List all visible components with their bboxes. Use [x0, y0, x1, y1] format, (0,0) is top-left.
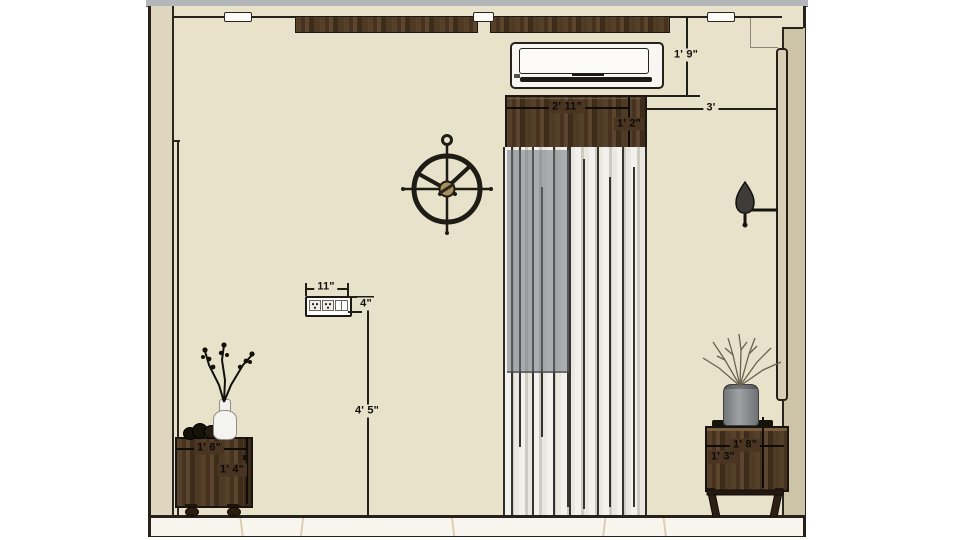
dim-label-right-table-height: 1' 3"	[708, 451, 738, 464]
dim-outlet-width-tick-r	[347, 283, 349, 296]
ac-front-panel	[519, 48, 649, 74]
elevation-drawing: 1' 9" 3' 2' 11" 1' 2"	[0, 0, 960, 540]
left-table-foot-1	[183, 504, 199, 517]
window-behind-curtain	[507, 150, 569, 371]
dim-pelmet-ext-line	[643, 95, 700, 97]
ac-indicator	[514, 74, 520, 78]
left-table-foot-2	[225, 504, 241, 517]
corner-step-hline	[750, 47, 778, 48]
dim-right-table-vline	[762, 417, 764, 488]
dim-outlet-tick-bottom	[348, 311, 362, 313]
dim-label-outlet-width: 11"	[314, 281, 337, 294]
clock-tick-left	[401, 187, 405, 191]
dim-label-ac-above: 1' 9"	[671, 49, 701, 62]
right-vase-twigs	[695, 330, 787, 390]
left-vase-body	[213, 410, 237, 440]
marble-floor	[151, 518, 803, 536]
corner-step-vline	[750, 18, 751, 48]
ac-vent-louver	[520, 77, 652, 82]
dim-label-pelmet-width: 2' 11"	[549, 101, 585, 114]
window-sill-line	[507, 371, 569, 373]
dim-label-outlet-floor: 4' 5"	[352, 405, 382, 418]
right-table-top-edge	[707, 428, 787, 431]
sconce-shade-icon	[736, 182, 754, 213]
wall-sconce	[725, 178, 783, 236]
dim-label-outlet-height: 4"	[357, 298, 375, 311]
ac-unit	[510, 42, 664, 89]
left-return-wall	[151, 6, 174, 515]
ceiling-wood-trim-right	[490, 16, 670, 33]
dim-label-3ft: 3'	[703, 102, 718, 115]
dim-label-left-table-height: 1' 4"	[217, 464, 247, 477]
left-vase-branches	[195, 335, 265, 405]
curtain	[503, 147, 647, 517]
ceiling-wood-trim-left	[295, 16, 478, 33]
right-table-legs	[705, 488, 785, 517]
ac-display-bar	[572, 73, 604, 76]
ceiling-light-3	[707, 12, 735, 22]
clock-tick-right	[489, 187, 493, 191]
right-wall-cap-line	[782, 27, 803, 29]
right-vase	[723, 384, 759, 426]
wall-clock	[390, 120, 510, 250]
dim-label-pelmet-height: 1' 2"	[614, 118, 644, 131]
dim-label-left-table-width: 1' 6"	[194, 442, 224, 455]
ceiling-light-2	[473, 12, 494, 22]
clock-tick-bottom	[445, 231, 449, 235]
switch-divider	[341, 301, 342, 310]
switch-module	[335, 300, 348, 311]
pelmet-top-highlight	[507, 98, 641, 99]
socket-module-2	[322, 300, 334, 311]
dim-outlet-width-tick-l	[305, 283, 307, 296]
clock-finial-ring	[443, 136, 452, 145]
ceiling-light-1	[224, 12, 252, 22]
outlet-plate	[305, 296, 352, 317]
socket-module-1	[309, 300, 321, 311]
sconce-base	[743, 223, 748, 228]
